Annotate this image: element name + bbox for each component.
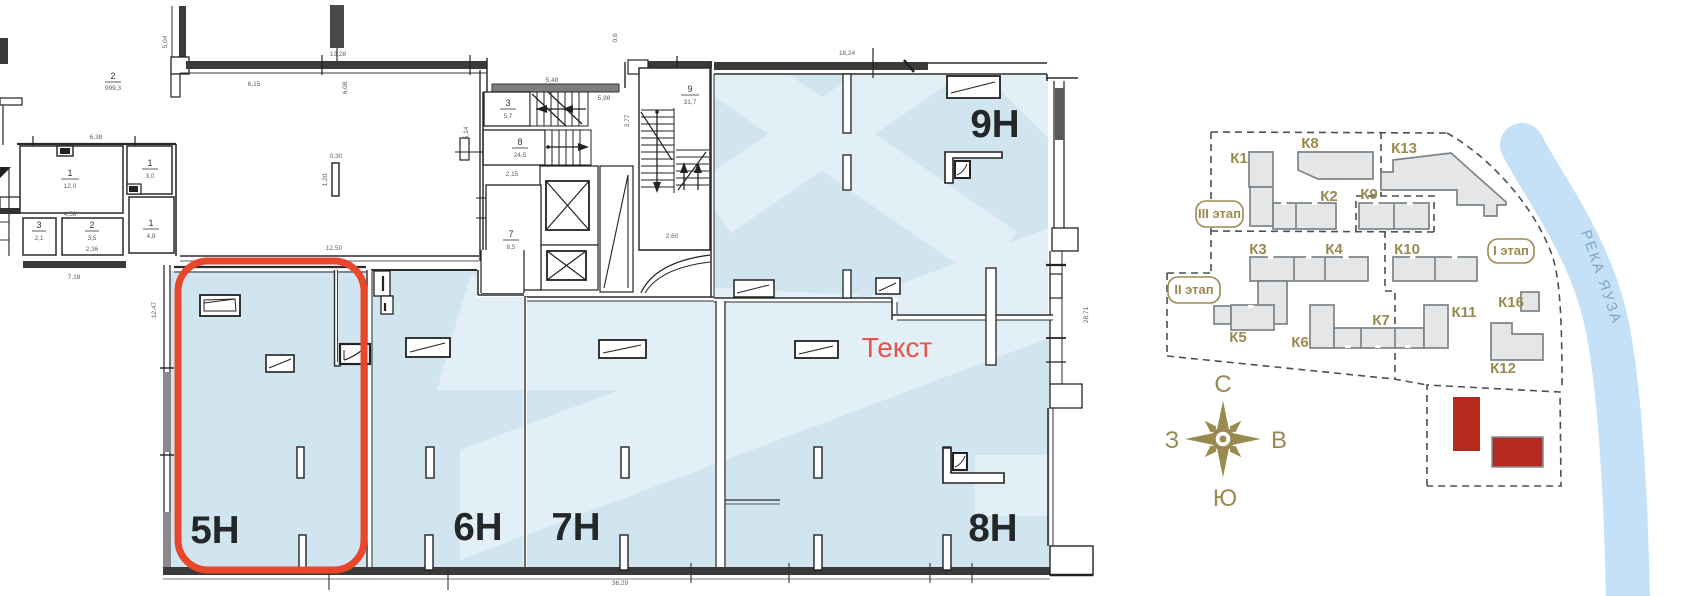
svg-text:7,18: 7,18 (68, 274, 81, 281)
svg-text:Текст: Текст (862, 332, 933, 363)
svg-text:К3: К3 (1249, 241, 1267, 258)
svg-text:12,47: 12,47 (151, 301, 158, 318)
svg-text:9: 9 (687, 84, 692, 94)
svg-text:В: В (1271, 427, 1287, 454)
svg-text:36,29: 36,29 (612, 580, 629, 587)
svg-text:1,20: 1,20 (322, 173, 329, 186)
svg-text:28,71: 28,71 (1083, 306, 1090, 323)
svg-text:9Н: 9Н (970, 103, 1019, 146)
svg-text:К11: К11 (1451, 304, 1476, 321)
svg-text:4,58: 4,58 (64, 211, 77, 218)
svg-text:8Н: 8Н (968, 507, 1017, 550)
svg-text:5,7: 5,7 (503, 113, 512, 120)
svg-text:7Н: 7Н (551, 506, 600, 549)
svg-text:К7: К7 (1372, 312, 1390, 329)
svg-text:8: 8 (517, 137, 522, 147)
svg-text:6,38: 6,38 (90, 134, 103, 141)
svg-text:24,5: 24,5 (514, 152, 527, 159)
svg-text:6Н: 6Н (453, 506, 502, 549)
svg-text:5,98: 5,98 (598, 95, 611, 102)
svg-text:К2: К2 (1320, 188, 1338, 205)
svg-text:0,6: 0,6 (612, 33, 619, 42)
svg-text:К6: К6 (1291, 334, 1309, 351)
svg-text:К10: К10 (1394, 241, 1420, 258)
svg-text:7: 7 (508, 229, 513, 239)
svg-text:Ю: Ю (1213, 485, 1237, 512)
svg-text:5,04: 5,04 (162, 35, 169, 48)
svg-text:К5: К5 (1229, 329, 1247, 346)
svg-text:1: 1 (67, 168, 72, 178)
svg-text:18,24: 18,24 (839, 50, 856, 57)
svg-text:2,36: 2,36 (86, 246, 99, 253)
svg-text:II этап: II этап (1174, 282, 1213, 297)
svg-text:3,5: 3,5 (87, 235, 96, 242)
svg-text:1: 1 (147, 158, 152, 168)
svg-text:12,0: 12,0 (64, 183, 77, 190)
svg-text:2,15: 2,15 (506, 171, 519, 178)
svg-text:3: 3 (505, 98, 510, 108)
svg-text:4,8: 4,8 (146, 233, 155, 240)
svg-text:5,48: 5,48 (546, 77, 559, 84)
svg-text:III этап: III этап (1198, 206, 1241, 221)
svg-text:31,7: 31,7 (684, 99, 697, 106)
svg-text:К12: К12 (1490, 360, 1516, 377)
svg-text:2: 2 (89, 220, 94, 230)
svg-text:13,28: 13,28 (330, 51, 347, 58)
svg-text:6,08: 6,08 (342, 81, 349, 94)
svg-text:999,3: 999,3 (105, 85, 122, 92)
svg-text:5Н: 5Н (190, 509, 239, 552)
svg-text:3: 3 (36, 220, 41, 230)
svg-text:2,60: 2,60 (666, 233, 679, 240)
svg-text:12,50: 12,50 (326, 245, 343, 252)
svg-text:5,14: 5,14 (463, 126, 470, 139)
svg-text:К1: К1 (1230, 150, 1248, 167)
svg-text:К8: К8 (1301, 135, 1319, 152)
svg-text:К9: К9 (1360, 186, 1378, 203)
svg-text:С: С (1214, 371, 1231, 398)
svg-text:2,1: 2,1 (34, 235, 43, 242)
svg-text:6,15: 6,15 (248, 81, 261, 88)
svg-text:К4: К4 (1325, 241, 1343, 258)
svg-text:К13: К13 (1391, 140, 1417, 157)
svg-text:3,77: 3,77 (624, 114, 631, 127)
svg-text:I этап: I этап (1493, 243, 1529, 258)
svg-text:0,30: 0,30 (330, 153, 343, 160)
svg-text:3,0: 3,0 (145, 173, 154, 180)
svg-text:2: 2 (110, 71, 115, 81)
svg-text:8,5: 8,5 (506, 244, 515, 251)
svg-text:1: 1 (148, 218, 153, 228)
svg-text:К16: К16 (1498, 294, 1524, 311)
svg-text:З: З (1165, 427, 1180, 454)
